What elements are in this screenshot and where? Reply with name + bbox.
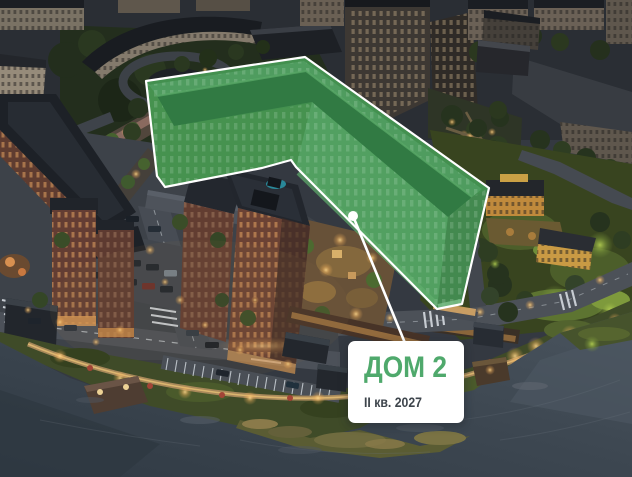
svg-text:ДОМ 2: ДОМ 2 [364,351,447,384]
svg-text:II кв. 2027: II кв. 2027 [364,394,422,410]
